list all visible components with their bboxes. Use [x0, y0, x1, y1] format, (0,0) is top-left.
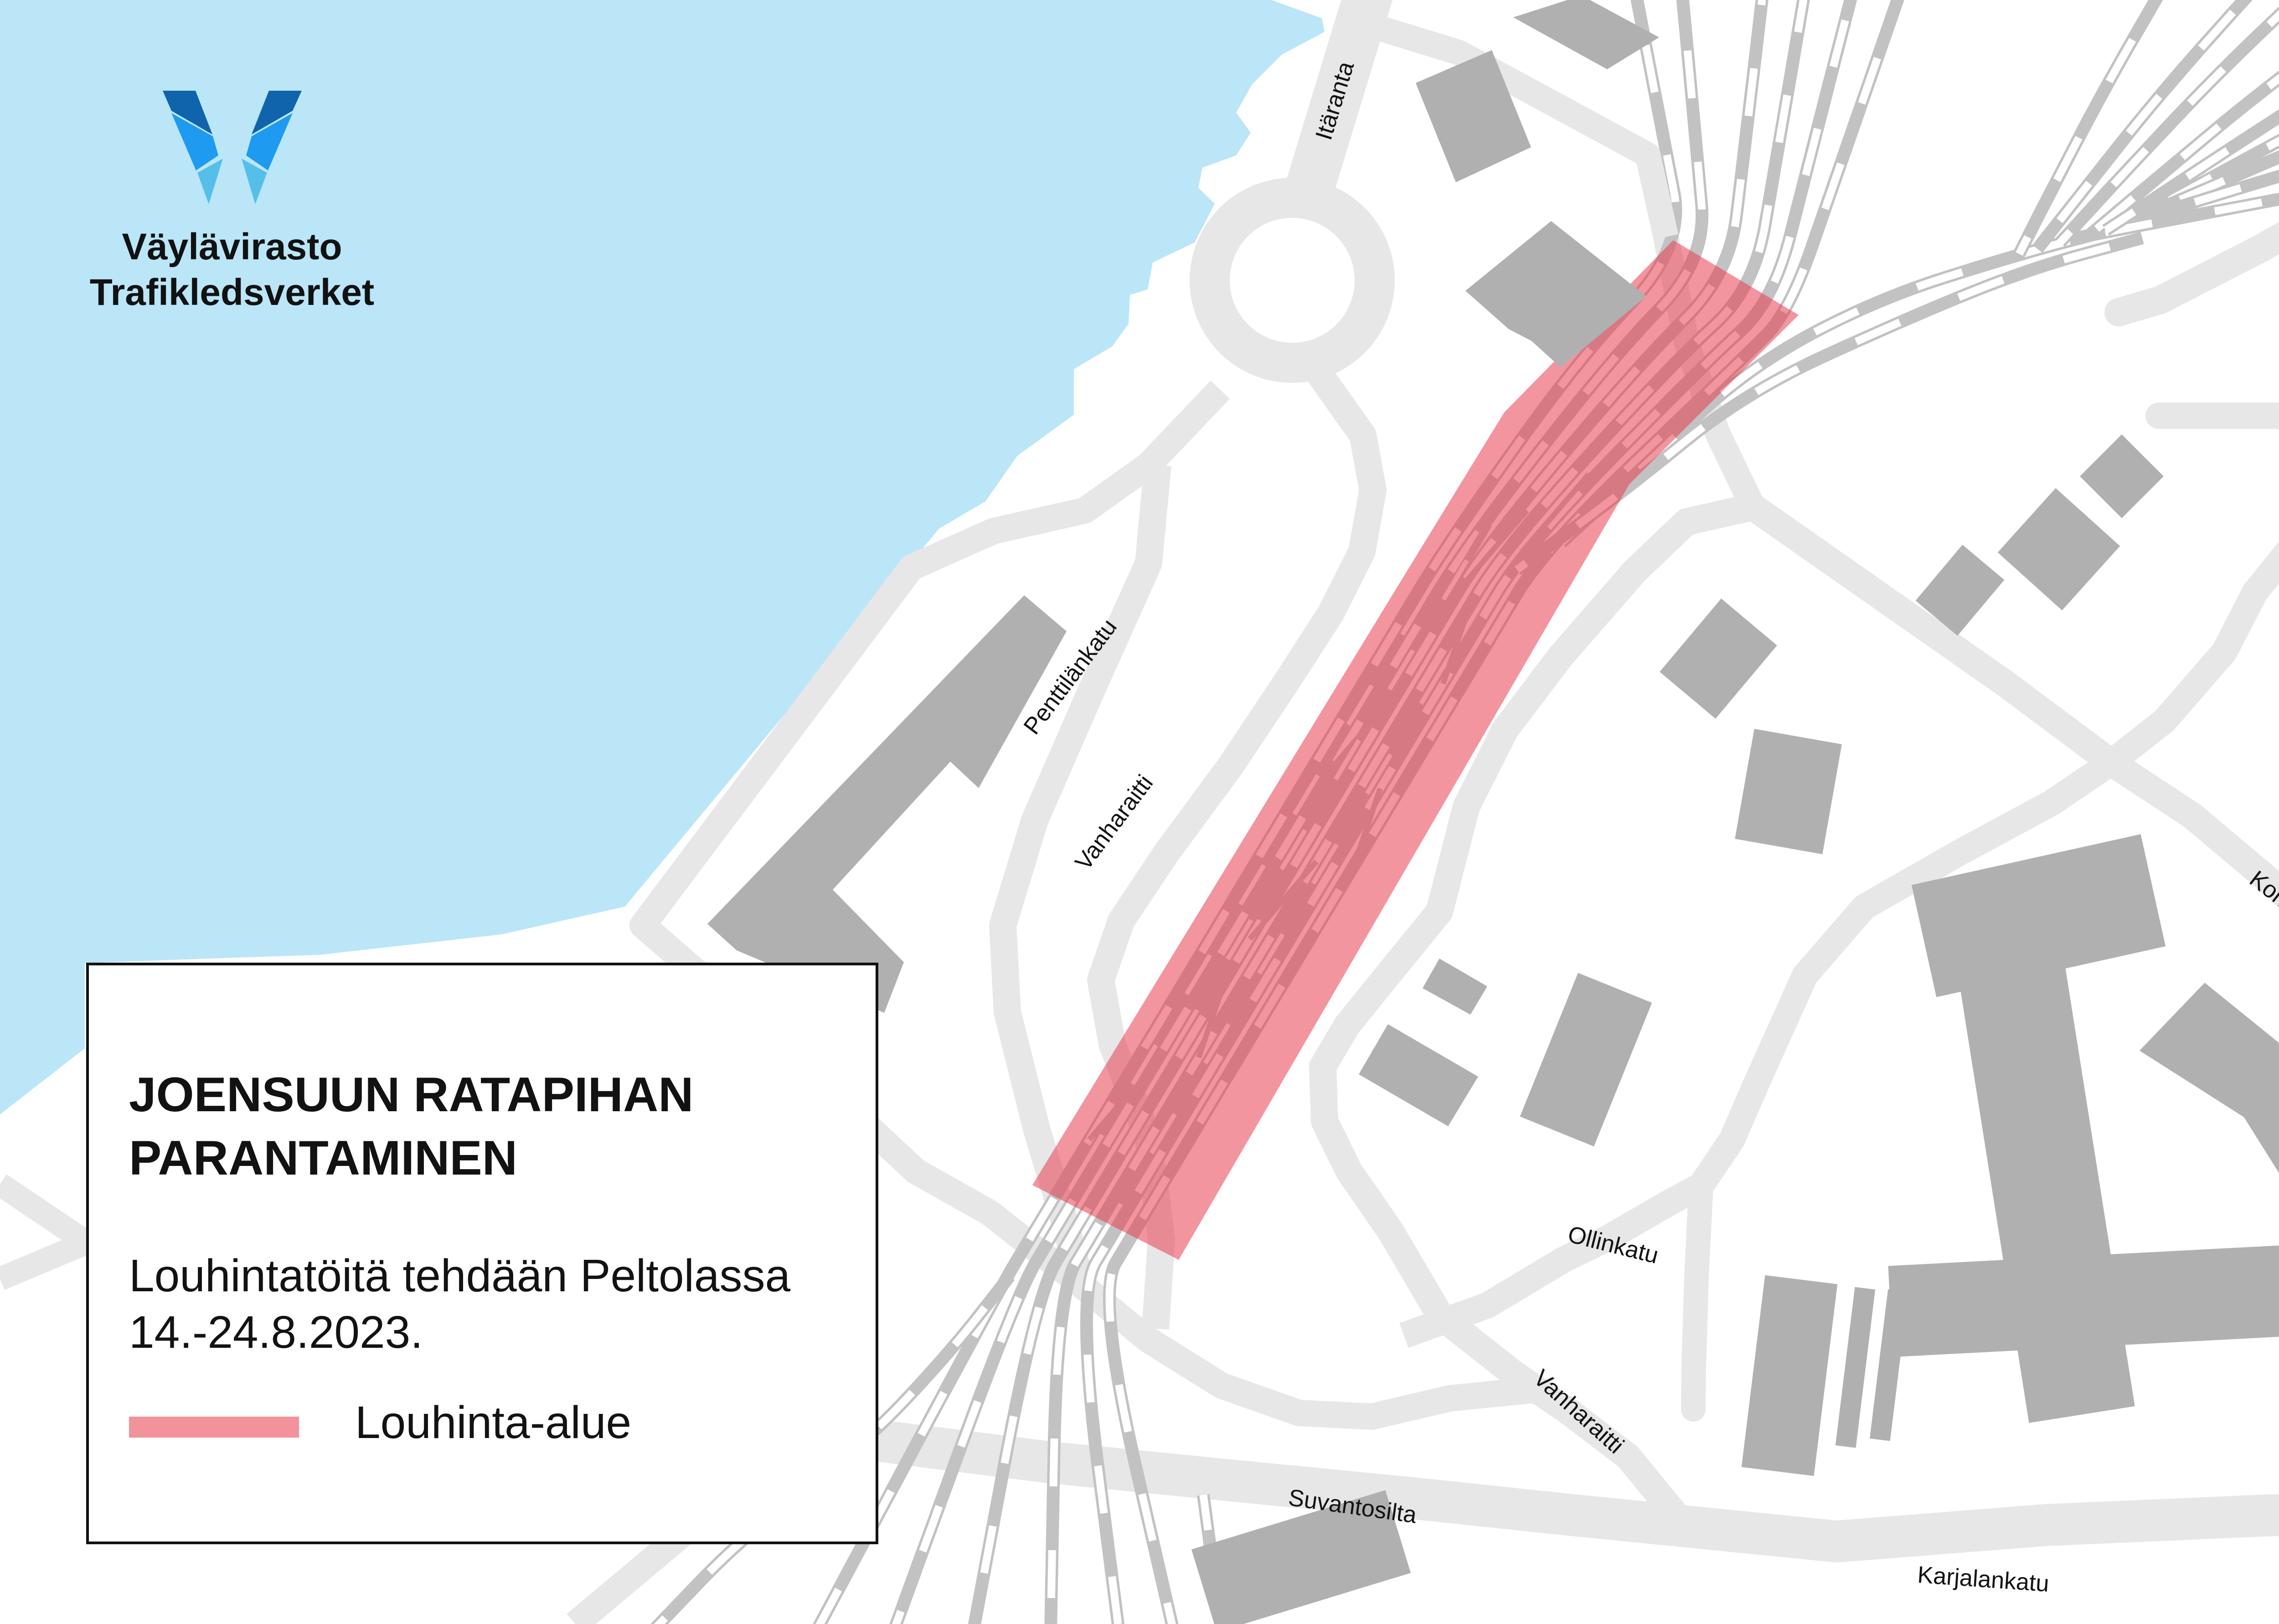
svg-text:PARANTAMINEN: PARANTAMINEN: [129, 1130, 517, 1185]
svg-text:Louhinta-alue: Louhinta-alue: [355, 1397, 631, 1448]
svg-text:Louhintatöitä tehdään Peltolas: Louhintatöitä tehdään Peltolassa: [129, 1250, 791, 1301]
svg-text:JOENSUUN RATAPIHAN: JOENSUUN RATAPIHAN: [129, 1067, 694, 1122]
svg-text:Kontionkatu: Kontionkatu: [2244, 866, 2279, 964]
svg-text:Trafikledsverket: Trafikledsverket: [90, 272, 375, 313]
svg-text:Vanharaitti: Vanharaitti: [1528, 1365, 1629, 1459]
svg-text:Vanharaitti: Vanharaitti: [1070, 770, 1159, 875]
svg-text:14.-24.8.2023.: 14.-24.8.2023.: [129, 1307, 423, 1358]
svg-text:Väylävirasto: Väylävirasto: [122, 226, 342, 268]
svg-text:Karjalankatu: Karjalankatu: [1917, 1562, 2050, 1597]
